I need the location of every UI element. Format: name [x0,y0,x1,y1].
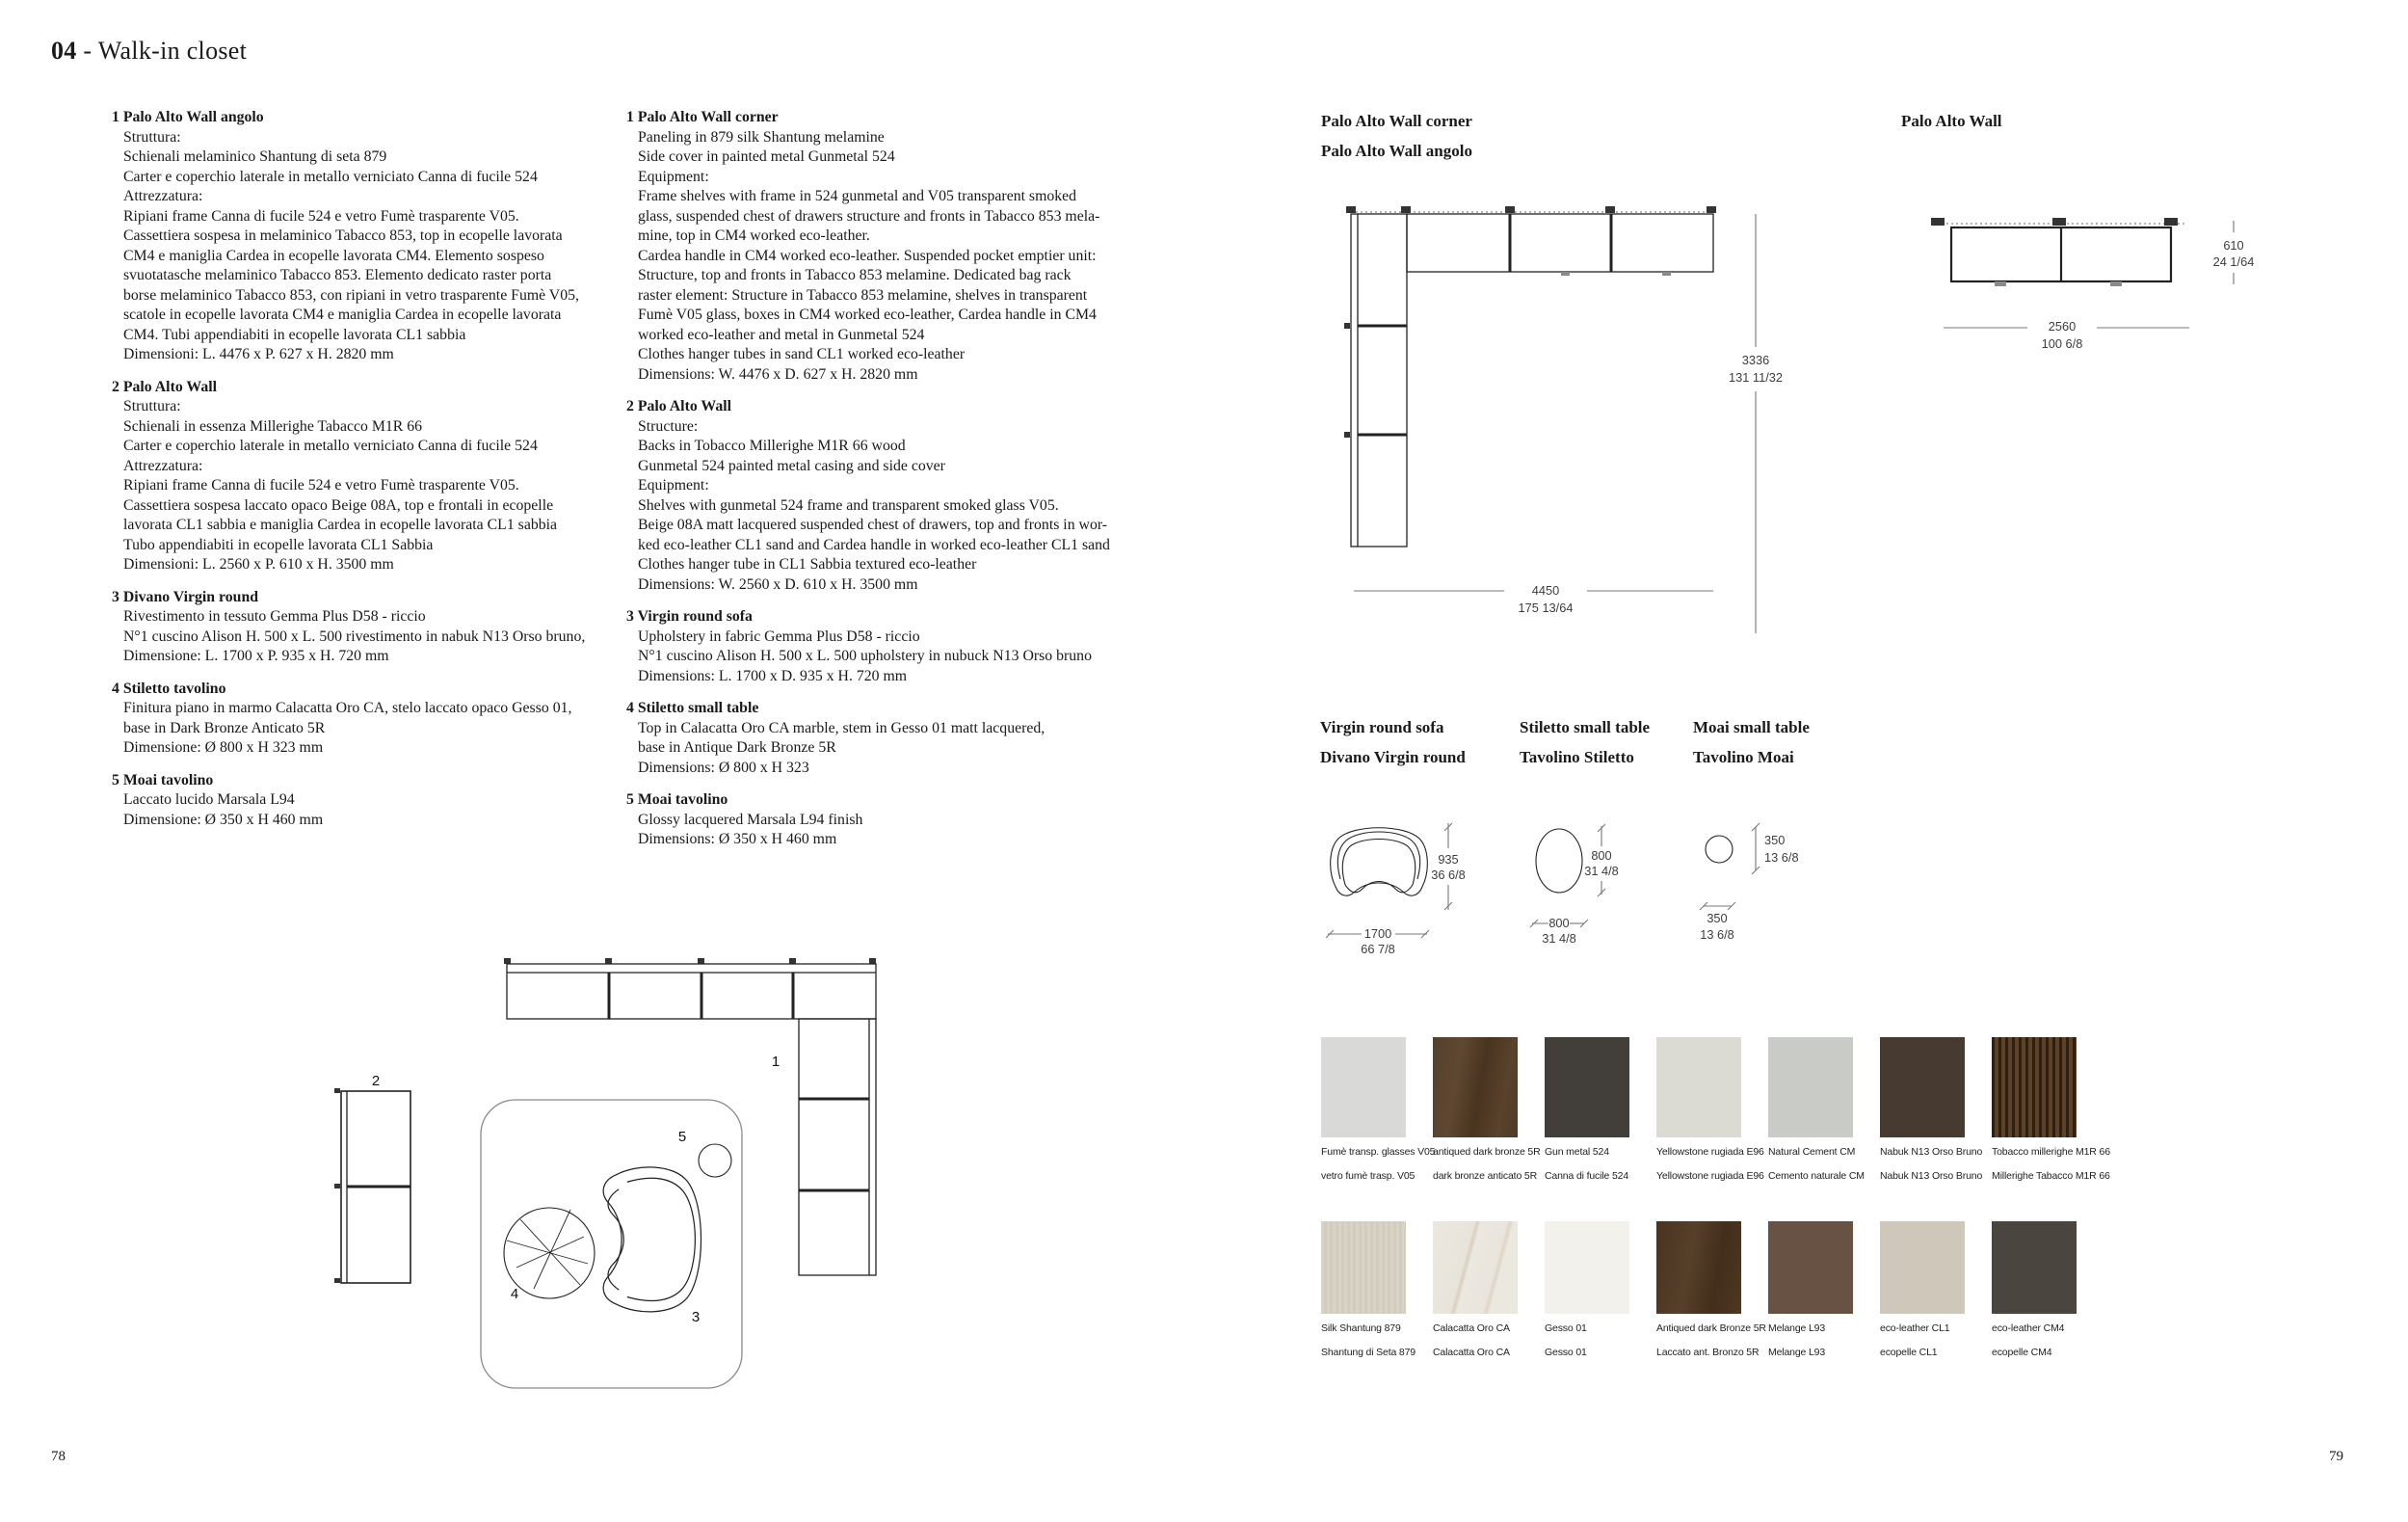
spec-item-body: Rivestimento in tessuto Gemma Plus D58 -… [112,607,632,667]
swatch-color-chip [1992,1221,2077,1314]
swatch-label-en: Calacatta Oro CA [1433,1323,1545,1334]
material-swatch: Yellowstone rugiada E96 Yellowstone rugi… [1656,1037,1768,1182]
spec-item-name: Moai tavolino [123,772,213,788]
spec-item-number: 5 [626,791,634,808]
material-swatch: Nabuk N13 Orso Bruno Nabuk N13 Orso Brun… [1880,1037,1992,1182]
spec-item-title: 2 Palo Alto Wall [112,378,632,398]
spec-item-title: 5 Moai tavolino [112,771,632,791]
spec-item-body: Top in Calacatta Oro CA marble, stem in … [626,719,1147,779]
moai-drawing-title-en: Moai small table [1693,718,1810,737]
swatch-label-it: vetro fumè trasp. V05 [1321,1171,1433,1182]
spec-item-name: Stiletto small table [638,700,758,716]
spec-item-number: 4 [626,700,634,716]
spec-item-body: Struttura: Schienali melaminico Shantung… [112,128,632,365]
spec-item: 2 Palo Alto Wall Struttura: Schienali in… [112,378,632,575]
wall-depth-in: 24 1/64 [2213,254,2255,269]
corner-unit-technical-drawing: 3336 131 11/32 4450 175 13/64 [1344,202,1792,655]
spec-item-body: Paneling in 879 silk Shantung melamine S… [626,128,1147,386]
swatch-color-chip [1768,1037,1853,1137]
swatch-label-it: ecopelle CL1 [1880,1348,1992,1358]
moai-diameter-in: 13 6/8 [1764,850,1799,865]
spec-item-body: Struttura: Schienali in essenza Millerig… [112,397,632,575]
spec-item: 4 Stiletto tavolino Finitura piano in ma… [112,680,632,759]
spec-item: 5 Moai tavolino Laccato lucido Marsala L… [112,771,632,831]
swatch-label-en: Tobacco millerighe M1R 66 [1992,1147,2104,1158]
section-number: 04 [51,37,77,65]
stiletto-diameter-mm: 800 [1591,848,1611,863]
spec-item-name: Palo Alto Wall [638,398,731,414]
swatch-label-en: Natural Cement CM [1768,1147,1880,1158]
spec-item-body: Finitura piano in marmo Calacatta Oro CA… [112,699,632,759]
spec-item-name: Palo Alto Wall angolo [123,109,264,125]
floor-plan: 1 2 3 4 5 [328,949,886,1398]
corner-height-mm: 3336 [1742,353,1769,367]
material-swatch: Tobacco millerighe M1R 66 Millerighe Tab… [1992,1037,2104,1182]
sofa-width-in: 66 7/8 [1361,942,1395,956]
swatch-label-it: Millerighe Tabacco M1R 66 [1992,1171,2104,1182]
corner-width-mm: 4450 [1532,583,1559,598]
material-swatch: Silk Shantung 879 Shantung di Seta 879 [1321,1221,1433,1358]
spec-item-number: 1 [112,109,119,125]
swatch-label-en: Fumè transp. glasses V05 [1321,1147,1433,1158]
spec-item-number: 3 [626,608,634,625]
material-swatch: Gun metal 524 Canna di fucile 524 [1545,1037,1656,1182]
swatch-label-en: antiqued dark bronze 5R [1433,1147,1545,1158]
swatch-label-en: Gun metal 524 [1545,1147,1656,1158]
moai-width-in: 13 6/8 [1700,927,1734,942]
material-swatch: antiqued dark bronze 5R dark bronze anti… [1433,1037,1545,1182]
moai-drawing-title-it: Tavolino Moai [1693,748,1794,767]
swatch-label-en: Silk Shantung 879 [1321,1323,1433,1334]
swatch-color-chip [1545,1221,1629,1314]
spec-item: 3 Virgin round sofa Upholstery in fabric… [626,607,1147,686]
spec-item-title: 4 Stiletto tavolino [112,680,632,700]
wall-width-in: 100 6/8 [2042,336,2083,351]
swatch-label-it: Gesso 01 [1545,1348,1656,1358]
swatch-label-en: Yellowstone rugiada E96 [1656,1147,1768,1158]
spec-item-title: 4 Stiletto small table [626,699,1147,719]
floorplan-number-moai: 5 [678,1129,686,1145]
material-swatch: eco-leather CM4 ecopelle CM4 [1992,1221,2104,1358]
spec-item-number: 3 [112,589,119,605]
spec-item: 2 Palo Alto Wall Structure: Backs in Tob… [626,397,1147,595]
page-number-left: 78 [51,1449,66,1465]
spec-column-english: 1 Palo Alto Wall corner Paneling in 879 … [626,108,1147,863]
floorplan-sofa [603,1167,701,1312]
moai-diameter-mm: 350 [1764,833,1785,847]
spec-item-number: 2 [112,379,119,395]
spec-item: 5 Moai tavolino Glossy lacquered Marsala… [626,790,1147,850]
page-number-right: 79 [2329,1449,2343,1465]
swatch-color-chip [1656,1037,1741,1137]
stiletto-drawing-title-it: Tavolino Stiletto [1520,748,1634,767]
spec-item-body: Glossy lacquered Marsala L94 finish Dime… [626,811,1147,850]
corner-drawing-title-it: Palo Alto Wall angolo [1321,142,1472,161]
stiletto-width-mm: 800 [1548,916,1569,930]
swatch-label-it: Canna di fucile 524 [1545,1171,1656,1182]
spec-item-title: 3 Divano Virgin round [112,588,632,608]
moai-dimension-drawing: 350 13 6/8 350 13 6/8 [1691,817,1816,962]
spec-item-title: 3 Virgin round sofa [626,607,1147,627]
swatch-color-chip [1768,1221,1853,1314]
spec-item-name: Palo Alto Wall [123,379,217,395]
material-swatch: Melange L93 Melange L93 [1768,1221,1880,1358]
spec-item: 1 Palo Alto Wall corner Paneling in 879 … [626,108,1147,385]
floorplan-number-sofa: 3 [692,1309,700,1325]
wall-drawing-title: Palo Alto Wall [1901,112,2002,131]
spec-item-title: 2 Palo Alto Wall [626,397,1147,417]
swatch-label-en: eco-leather CM4 [1992,1323,2104,1334]
material-swatch: Fumè transp. glasses V05 vetro fumè tras… [1321,1037,1433,1182]
swatch-row-1: Fumè transp. glasses V05 vetro fumè tras… [1321,1037,2104,1182]
corner-height-in: 131 11/32 [1729,370,1783,385]
spec-item-number: 4 [112,681,119,697]
stiletto-dimension-drawing: 800 31 4/8 800 31 4/8 [1522,817,1633,962]
swatch-color-chip [1321,1221,1406,1314]
material-swatch: Natural Cement CM Cemento naturale CM [1768,1037,1880,1182]
wall-unit-technical-drawing: 610 24 1/64 2560 100 6/8 [1927,207,2245,357]
floorplan-number-corner-unit: 1 [772,1054,780,1070]
wall-depth-mm: 610 [2223,238,2243,253]
swatch-color-chip [1545,1037,1629,1137]
section-name: - Walk-in closet [77,37,248,65]
material-swatch: Antiqued dark Bronze 5R Laccato ant. Bro… [1656,1221,1768,1358]
swatch-label-it: Laccato ant. Bronzo 5R [1656,1348,1768,1358]
spec-item-body: Laccato lucido Marsala L94 Dimensione: Ø… [112,790,632,830]
stiletto-width-in: 31 4/8 [1542,931,1576,946]
swatch-label-it: Yellowstone rugiada E96 [1656,1171,1768,1182]
spec-item-name: Virgin round sofa [638,608,753,625]
swatch-label-it: ecopelle CM4 [1992,1348,2104,1358]
spec-item: 1 Palo Alto Wall angolo Struttura: Schie… [112,108,632,365]
stiletto-drawing-title-en: Stiletto small table [1520,718,1650,737]
page-title: 04 - Walk-in closet [51,37,247,66]
floorplan-number-stiletto: 4 [511,1286,518,1302]
spec-item-number: 5 [112,772,119,788]
spec-item: 4 Stiletto small table Top in Calacatta … [626,699,1147,778]
sofa-drawing-title-it: Divano Virgin round [1320,748,1466,767]
swatch-color-chip [1880,1037,1965,1137]
swatch-label-en: Gesso 01 [1545,1323,1656,1334]
corner-drawing-title-en: Palo Alto Wall corner [1321,112,1472,131]
spec-item-name: Stiletto tavolino [123,681,226,697]
sofa-depth-in: 36 6/8 [1431,868,1466,882]
spec-item-name: Moai tavolino [638,791,728,808]
swatch-label-en: Melange L93 [1768,1323,1880,1334]
swatch-color-chip [1656,1221,1741,1314]
spec-item-title: 1 Palo Alto Wall angolo [112,108,632,128]
swatch-color-chip [1992,1037,2077,1137]
corner-width-in: 175 13/64 [1519,601,1574,615]
spec-item-number: 2 [626,398,634,414]
spec-column-italian: 1 Palo Alto Wall angolo Struttura: Schie… [112,108,632,842]
spec-item-number: 1 [626,109,634,125]
sofa-depth-mm: 935 [1438,852,1458,867]
spec-item-title: 1 Palo Alto Wall corner [626,108,1147,128]
sofa-width-mm: 1700 [1364,926,1391,941]
swatch-label-en: Nabuk N13 Orso Bruno [1880,1147,1992,1158]
swatch-label-it: Nabuk N13 Orso Bruno [1880,1171,1992,1182]
catalog-page: 04 - Walk-in closet 1 Palo Alto Wall ang… [0,0,2408,1522]
spec-item-name: Divano Virgin round [123,589,258,605]
spec-item-name: Palo Alto Wall corner [638,109,779,125]
spec-item-body: Structure: Backs in Tobacco Millerighe M… [626,417,1147,596]
swatch-label-it: dark bronze anticato 5R [1433,1171,1545,1182]
material-swatch: Gesso 01 Gesso 01 [1545,1221,1656,1358]
swatch-label-it: Shantung di Seta 879 [1321,1348,1433,1358]
spec-item-title: 5 Moai tavolino [626,790,1147,811]
swatch-row-2: Silk Shantung 879 Shantung di Seta 879 C… [1321,1221,2104,1358]
swatch-label-it: Melange L93 [1768,1348,1880,1358]
swatch-label-it: Cemento naturale CM [1768,1171,1880,1182]
swatch-color-chip [1433,1221,1518,1314]
wall-width-mm: 2560 [2049,319,2076,334]
moai-width-mm: 350 [1707,911,1727,925]
swatch-color-chip [1321,1037,1406,1137]
swatch-label-it: Calacatta Oro CA [1433,1348,1545,1358]
sofa-dimension-drawing: 935 36 6/8 1700 66 7/8 [1320,817,1484,962]
material-swatch: eco-leather CL1 ecopelle CL1 [1880,1221,1992,1358]
swatch-label-en: Antiqued dark Bronze 5R [1656,1323,1768,1334]
swatch-color-chip [1880,1221,1965,1314]
stiletto-diameter-in: 31 4/8 [1584,864,1619,878]
sofa-drawing-title-en: Virgin round sofa [1320,718,1443,737]
spec-item-body: Upholstery in fabric Gemma Plus D58 - ri… [626,627,1147,687]
swatch-color-chip [1433,1037,1518,1137]
swatch-label-en: eco-leather CL1 [1880,1323,1992,1334]
spec-item: 3 Divano Virgin round Rivestimento in te… [112,588,632,667]
floorplan-number-wall-unit: 2 [372,1073,380,1089]
material-swatch: Calacatta Oro CA Calacatta Oro CA [1433,1221,1545,1358]
